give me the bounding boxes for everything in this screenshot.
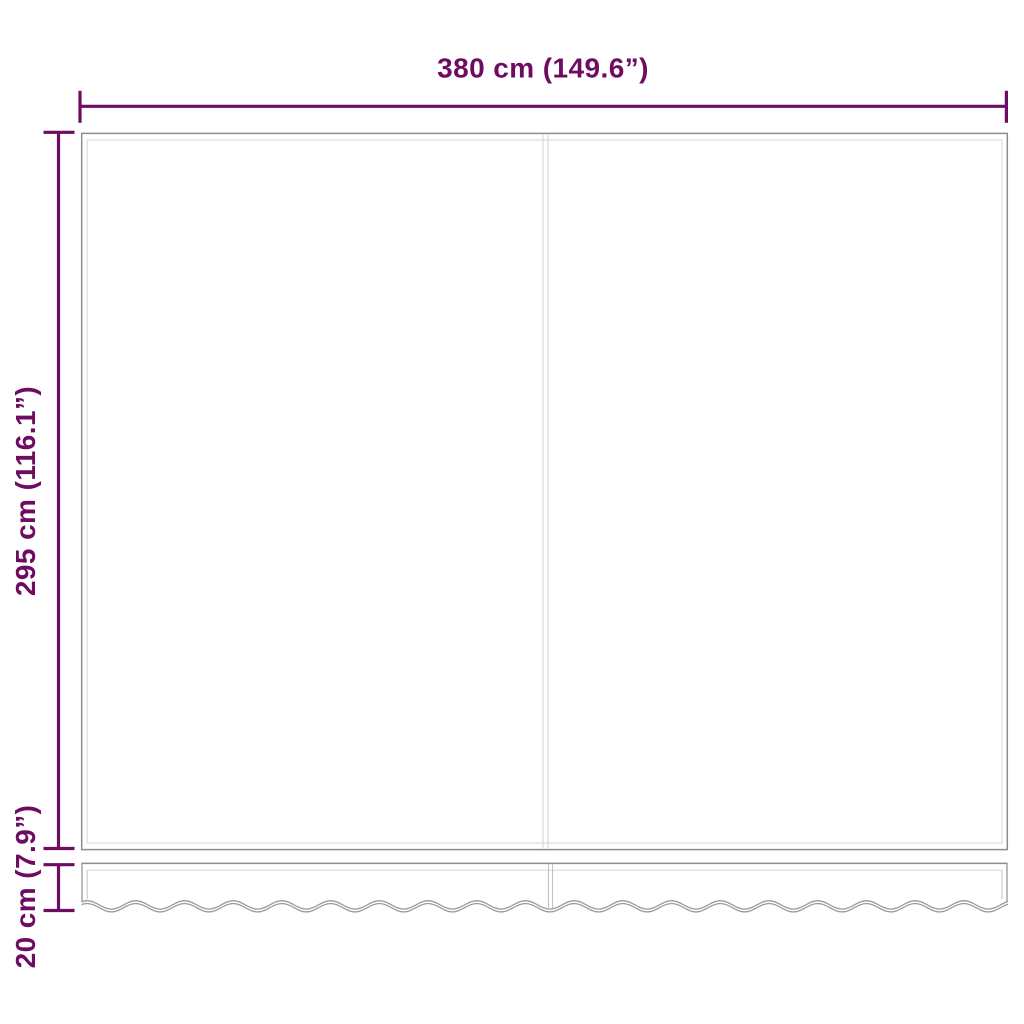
svg-text:295 cm (116.1”): 295 cm (116.1”) <box>10 386 41 596</box>
svg-text:380 cm (149.6”): 380 cm (149.6”) <box>437 52 649 83</box>
svg-text:20 cm (7.9”): 20 cm (7.9”) <box>10 805 41 969</box>
